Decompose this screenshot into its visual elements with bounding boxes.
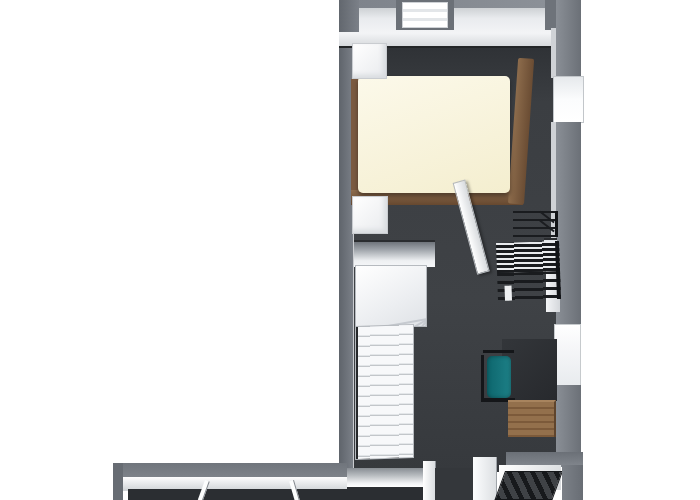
nightstand-top [352,43,387,79]
chimney-inner-face [402,2,448,28]
stairs-going-down [494,471,563,500]
shelf-top-slats [496,241,560,273]
office-chair-seat [487,356,511,398]
partition-wall [354,240,435,267]
chair-frame-side [481,355,484,402]
stairs-straight-flight [356,325,413,459]
shelf-leg [505,286,513,301]
hallway-partition-wall [473,457,496,500]
wooden-side-table [508,400,556,437]
door-jamb [423,461,435,500]
chair-frame-top [483,350,514,353]
top-left-corner-wall [339,0,359,32]
right-wall-upper [556,0,581,78]
rack-post [555,211,558,237]
landing-floor-strip [347,487,435,500]
hallway-left-wall [113,463,123,500]
clothes-rack [513,211,558,237]
metal-shelf [496,241,561,301]
stairs-winder-treads [356,266,426,326]
doorway-opening [435,468,473,500]
chimney-recess [396,0,454,30]
floorplan-canvas [0,0,700,500]
landing-bottom-wall [347,468,435,487]
nightstand-bottom [352,196,388,234]
hallway-right-outer-wall [562,465,583,500]
window-lower [554,324,581,386]
bed-mattress [358,76,510,193]
hallway-floor [128,489,347,500]
right-wall-inner-face-upper [551,28,556,78]
window-upper [553,76,584,123]
